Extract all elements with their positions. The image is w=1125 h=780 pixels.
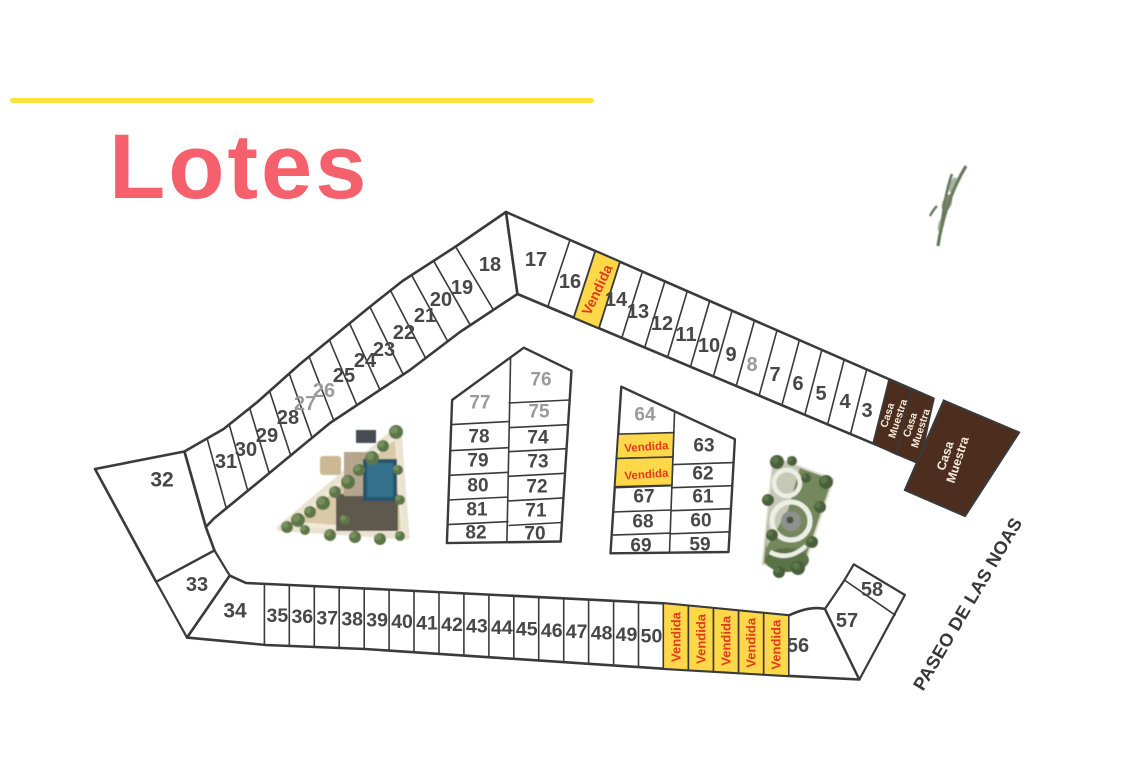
svg-text:35: 35 — [267, 605, 289, 627]
svg-text:70: 70 — [524, 524, 545, 545]
svg-text:77: 77 — [469, 393, 490, 414]
svg-text:57: 57 — [836, 610, 858, 632]
svg-text:59: 59 — [689, 535, 710, 556]
svg-text:80: 80 — [467, 476, 488, 497]
svg-text:56: 56 — [787, 635, 809, 657]
svg-text:62: 62 — [692, 464, 713, 485]
svg-text:39: 39 — [366, 610, 388, 632]
svg-text:49: 49 — [616, 624, 638, 646]
svg-text:43: 43 — [466, 615, 488, 637]
svg-text:24: 24 — [354, 350, 377, 372]
svg-text:29: 29 — [256, 425, 278, 447]
svg-text:36: 36 — [291, 606, 313, 628]
svg-text:12: 12 — [651, 313, 673, 335]
svg-text:82: 82 — [465, 523, 486, 544]
svg-text:69: 69 — [630, 536, 651, 557]
svg-text:60: 60 — [690, 511, 711, 532]
svg-text:79: 79 — [467, 451, 488, 472]
svg-text:40: 40 — [391, 611, 413, 633]
svg-text:44: 44 — [491, 617, 513, 639]
svg-text:17: 17 — [525, 249, 547, 271]
svg-text:81: 81 — [466, 500, 488, 521]
svg-text:4: 4 — [839, 391, 851, 413]
svg-text:25: 25 — [333, 365, 355, 387]
svg-text:45: 45 — [516, 618, 538, 640]
svg-text:14: 14 — [605, 289, 628, 311]
svg-text:76: 76 — [530, 370, 551, 391]
svg-text:74: 74 — [527, 428, 549, 449]
svg-text:73: 73 — [527, 452, 548, 473]
svg-text:11: 11 — [675, 324, 696, 346]
svg-text:Vendida: Vendida — [694, 613, 709, 664]
svg-text:64: 64 — [634, 405, 656, 426]
svg-text:Vendida: Vendida — [719, 615, 734, 666]
svg-text:10: 10 — [698, 335, 720, 357]
svg-text:5: 5 — [815, 383, 826, 405]
svg-text:38: 38 — [341, 608, 363, 630]
svg-text:28: 28 — [277, 407, 299, 429]
svg-text:78: 78 — [468, 427, 489, 448]
svg-text:22: 22 — [393, 322, 415, 344]
svg-text:32: 32 — [150, 469, 173, 492]
svg-text:8: 8 — [746, 354, 757, 376]
svg-text:33: 33 — [186, 574, 208, 596]
svg-text:50: 50 — [641, 626, 663, 648]
svg-text:34: 34 — [223, 600, 247, 623]
svg-text:Vendida: Vendida — [744, 617, 759, 668]
svg-text:3: 3 — [861, 400, 872, 422]
svg-text:23: 23 — [373, 339, 395, 361]
svg-text:PASEO DE LAS NOAS: PASEO DE LAS NOAS — [909, 514, 1026, 694]
svg-text:71: 71 — [525, 501, 547, 522]
svg-text:21: 21 — [414, 305, 436, 327]
svg-text:9: 9 — [725, 344, 736, 366]
svg-text:19: 19 — [451, 277, 473, 299]
svg-text:42: 42 — [441, 614, 463, 636]
svg-text:7: 7 — [769, 364, 780, 386]
svg-text:41: 41 — [416, 613, 438, 635]
svg-text:46: 46 — [541, 620, 563, 642]
svg-text:16: 16 — [559, 271, 581, 293]
svg-text:48: 48 — [591, 623, 613, 645]
svg-text:75: 75 — [528, 402, 550, 423]
svg-text:67: 67 — [633, 487, 654, 508]
svg-text:68: 68 — [632, 512, 653, 533]
svg-text:Vendida: Vendida — [668, 611, 683, 662]
svg-text:13: 13 — [627, 301, 649, 323]
svg-text:63: 63 — [693, 436, 714, 457]
svg-text:58: 58 — [861, 579, 883, 601]
svg-text:47: 47 — [566, 621, 588, 643]
svg-text:Vendida: Vendida — [769, 619, 784, 670]
svg-text:72: 72 — [526, 477, 547, 498]
svg-text:31: 31 — [215, 451, 237, 473]
svg-text:37: 37 — [316, 607, 338, 629]
svg-text:30: 30 — [235, 439, 257, 461]
svg-text:61: 61 — [692, 487, 714, 508]
svg-text:26: 26 — [313, 380, 335, 402]
svg-text:18: 18 — [479, 254, 501, 276]
svg-text:6: 6 — [792, 373, 803, 395]
